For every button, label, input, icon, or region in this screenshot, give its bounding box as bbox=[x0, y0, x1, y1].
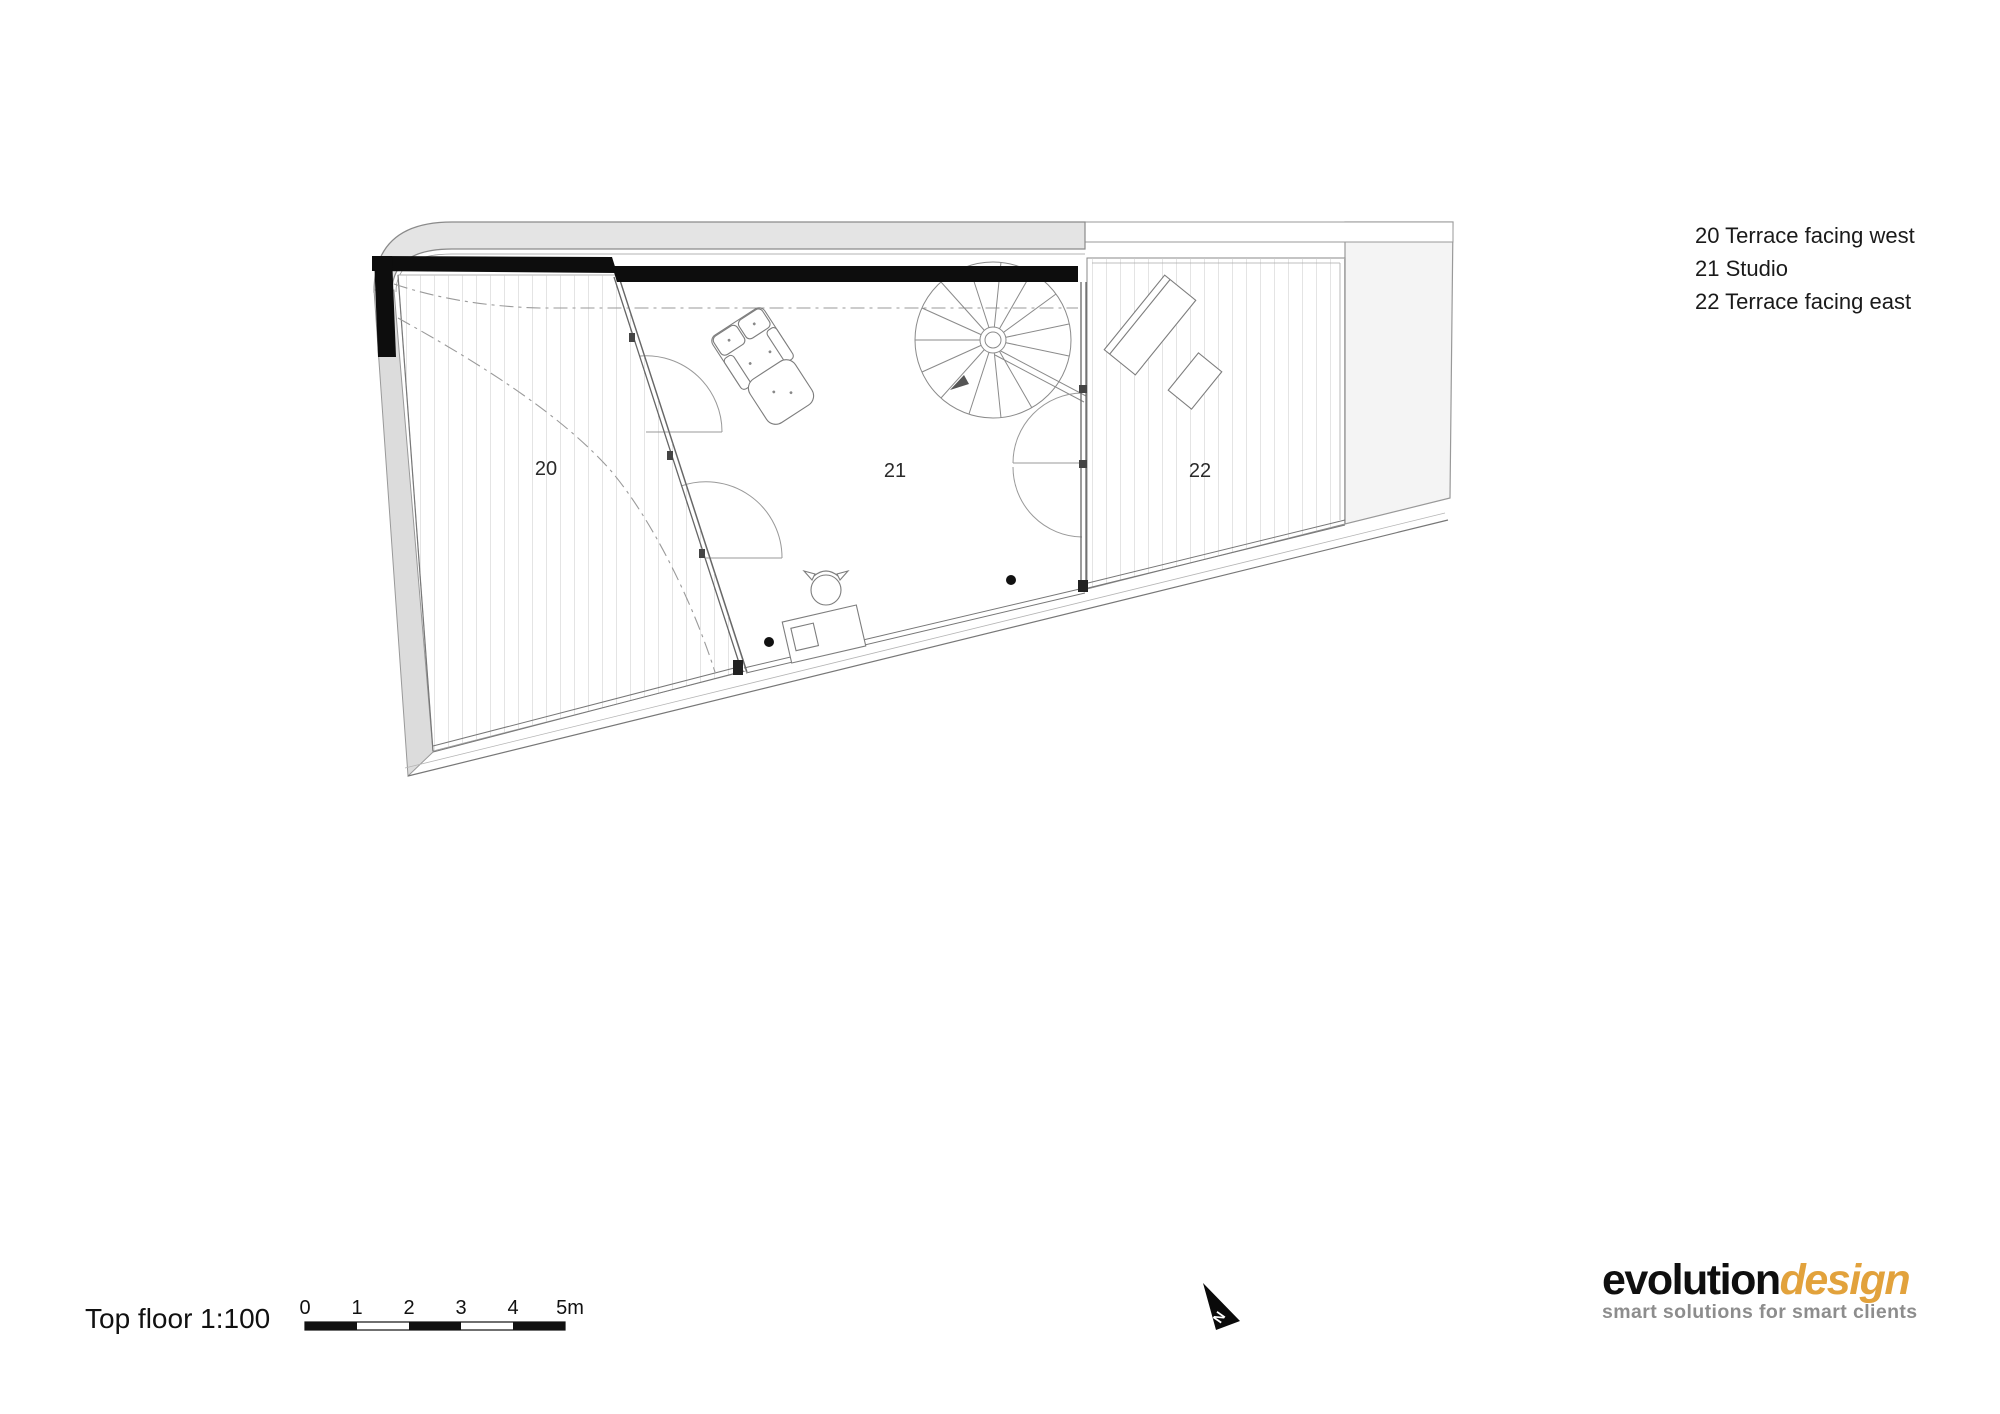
spiral-staircase bbox=[915, 262, 1086, 418]
wall-terrace-west-top bbox=[372, 256, 617, 273]
logo-primary: evolution bbox=[1602, 1256, 1780, 1304]
terrace-east-deck bbox=[1087, 258, 1345, 589]
door-swing-east-upper bbox=[1013, 393, 1083, 463]
room-label-studio: 21 bbox=[884, 460, 906, 482]
stair-newel-post bbox=[985, 332, 1001, 348]
legend-item: 21 Studio bbox=[1695, 252, 1915, 285]
column-dot bbox=[764, 637, 774, 647]
logo-wordmark: evolutiondesign bbox=[1602, 1260, 1962, 1300]
north-arrow-icon: N bbox=[1203, 1283, 1240, 1330]
legend-item: 22 Terrace facing east bbox=[1695, 285, 1915, 318]
legend-item: 20 Terrace facing west bbox=[1695, 219, 1915, 252]
drawing-title: Top floor 1:100 bbox=[85, 1303, 270, 1335]
legend: 20 Terrace facing west 21 Studio 22 Terr… bbox=[1695, 219, 1915, 318]
desk bbox=[782, 605, 866, 663]
door-swing-east-lower bbox=[1013, 467, 1082, 537]
scale-tick: 0 bbox=[299, 1297, 310, 1319]
studio-furniture bbox=[709, 305, 866, 663]
room-label-terrace-west: 20 bbox=[535, 458, 557, 480]
logo-tagline: smart solutions for smart clients bbox=[1602, 1301, 1962, 1324]
logo-secondary: design bbox=[1780, 1256, 1910, 1304]
scale-tick: 2 bbox=[403, 1297, 414, 1319]
glass-wall-east-base bbox=[1078, 580, 1088, 592]
scale-tick: 4 bbox=[507, 1297, 518, 1319]
vase bbox=[804, 571, 848, 605]
door-swings bbox=[640, 356, 1083, 558]
terrace-west-deck bbox=[398, 275, 746, 752]
glass-wall-east bbox=[1081, 282, 1086, 590]
scale-bar: 0 1 2 3 4 5m bbox=[299, 1297, 583, 1330]
wall-studio-top bbox=[612, 266, 1078, 282]
column-dot bbox=[1006, 575, 1016, 585]
scale-tick: 1 bbox=[351, 1297, 362, 1319]
floor-plan-canvas: 20 21 22 0 1 2 3 4 5m N bbox=[0, 0, 2000, 1414]
company-logo: evolutiondesign smart solutions for smar… bbox=[1602, 1260, 1962, 1324]
roof-band-east bbox=[1085, 222, 1453, 242]
roof-right-block bbox=[1345, 222, 1453, 524]
glass-wall-west-base bbox=[733, 660, 743, 675]
room-label-terrace-east: 22 bbox=[1189, 460, 1211, 482]
scale-tick: 3 bbox=[455, 1297, 466, 1319]
scale-tick: 5m bbox=[556, 1297, 584, 1319]
